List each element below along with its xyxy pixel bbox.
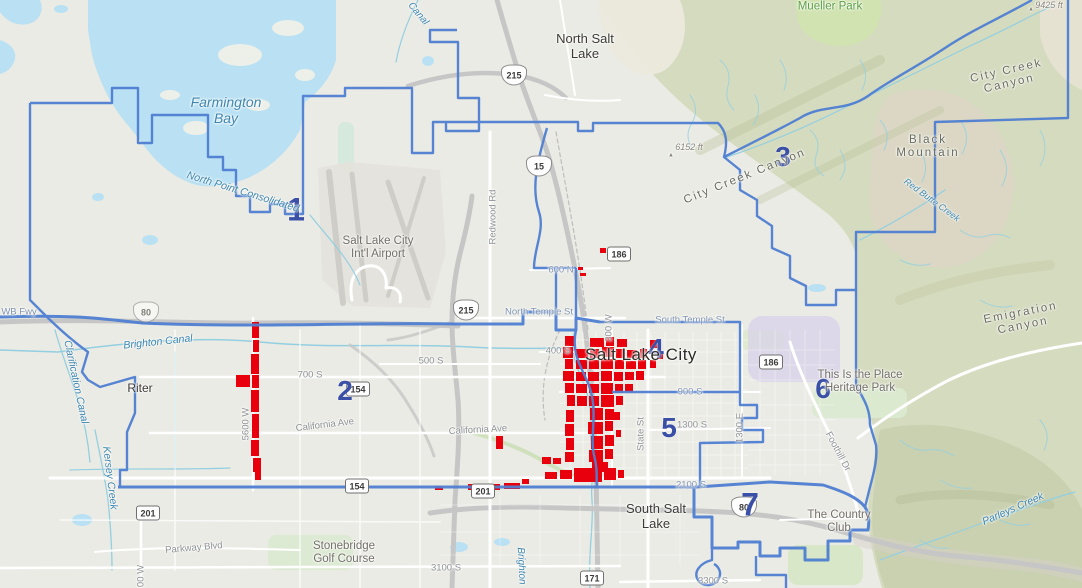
- map-area: [218, 44, 262, 66]
- map-area: [494, 538, 510, 546]
- boundary-west-edge: [30, 103, 135, 487]
- map-area: [54, 5, 68, 13]
- map-feature: [408, 73, 566, 98]
- route-201-shield-icon: 201: [136, 506, 160, 521]
- map-area: [748, 316, 840, 382]
- map-area: [268, 535, 353, 570]
- map-viewport[interactable]: 215215158080186186154154201201171 123456…: [0, 0, 1082, 588]
- map-feature: [0, 566, 760, 582]
- map-area: [160, 90, 180, 100]
- map-feature: [452, 196, 472, 588]
- map-feature: [0, 0, 42, 25]
- map-area: [422, 56, 434, 66]
- route-186-shield-icon: 186: [607, 247, 631, 262]
- boundary-d7-south-squiggle: [696, 548, 786, 588]
- route-171-shield-icon: 171: [580, 571, 604, 586]
- route-154-shield-icon: 154: [346, 382, 370, 397]
- map-area: [92, 193, 104, 201]
- map-area: [272, 20, 304, 36]
- map-feature: [95, 430, 112, 570]
- map-area: [808, 284, 826, 292]
- street-grid: [440, 495, 700, 565]
- route-201-shield-icon: 201: [471, 484, 495, 499]
- route-154-shield-icon: 154: [345, 479, 369, 494]
- map-area: [183, 121, 209, 135]
- basemap-canvas: [0, 0, 1082, 588]
- map-area: [142, 235, 158, 245]
- boundary-county-line: [446, 122, 726, 157]
- map-area: [295, 69, 315, 81]
- map-feature: [0, 40, 15, 74]
- map-feature: [598, 0, 685, 75]
- map-area: [246, 99, 270, 111]
- map-feature: [612, 325, 742, 487]
- route-186-shield-icon: 186: [759, 355, 783, 370]
- map-area: [788, 545, 863, 585]
